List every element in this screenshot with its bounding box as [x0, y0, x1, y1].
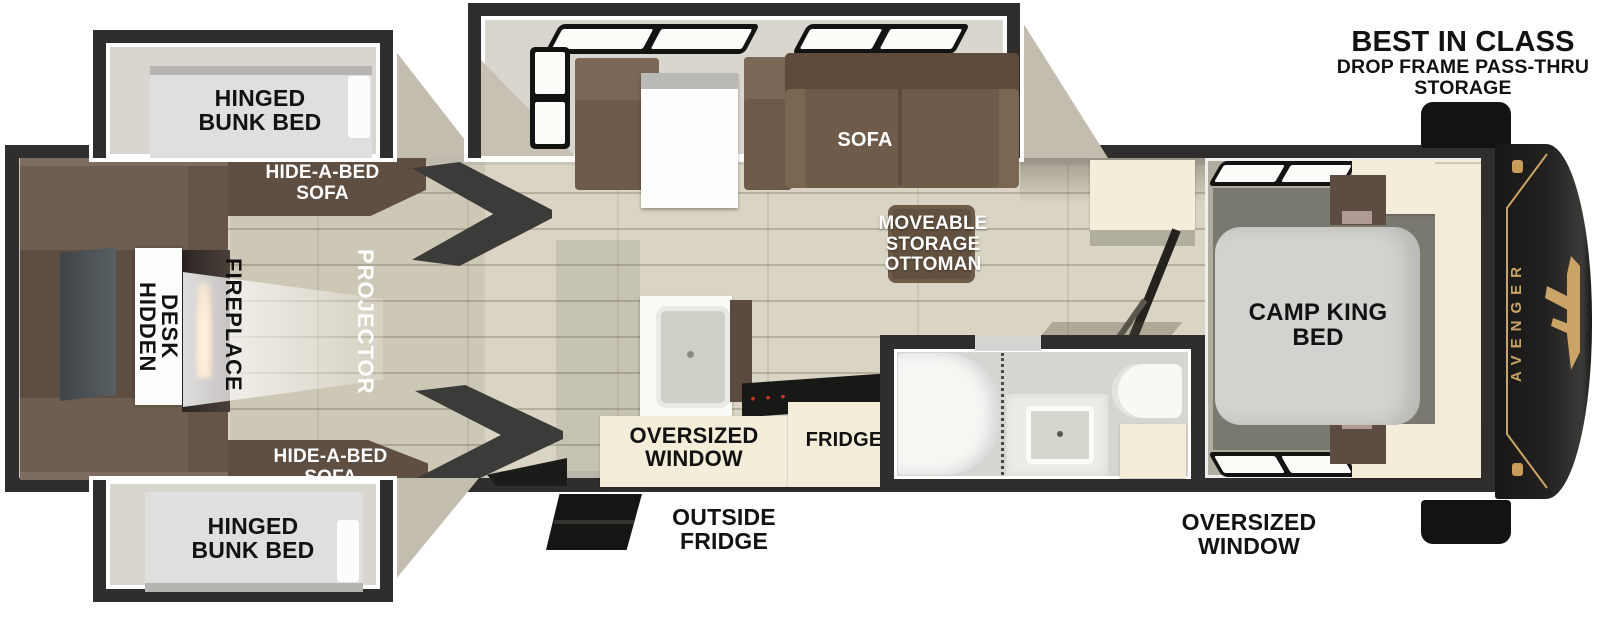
sink-drain: [687, 351, 694, 358]
bunk-top-sidewall: [387, 40, 479, 158]
nightstand-top: [1330, 175, 1386, 225]
shower-curtain-rod: [1001, 353, 1004, 475]
passthru-storage-door-bottom: [1421, 500, 1511, 544]
toilet: [1112, 364, 1182, 418]
window-pane: [535, 52, 565, 94]
outside-fridge-label: OUTSIDE FRIDGE: [645, 505, 803, 553]
brand-label: AVENGER: [1508, 161, 1526, 481]
shower: [898, 353, 1000, 475]
tv-screen: [60, 247, 116, 401]
fireplace-label: FIREPLACE: [222, 250, 252, 400]
hide-a-bed-top-label: HIDE-A-BED SOFA: [240, 163, 405, 204]
oversized-window-bedroom-label: OVERSIZED WINDOW: [1168, 510, 1330, 558]
cooktop-knobs: [748, 394, 788, 402]
window-pane: [651, 29, 753, 49]
rear-cabinet-top: [20, 158, 228, 250]
best-in-class-callout: BEST IN CLASS DROP FRAME PASS-THRU STORA…: [1330, 27, 1596, 98]
nightstand-drawer: [1342, 211, 1372, 224]
rv-floorplan: HIDDEN DESK FIREPLACE PROJECTOR HIDE-A-B…: [0, 0, 1600, 627]
dinette-table: [641, 73, 738, 208]
best-in-class-line1: BEST IN CLASS: [1330, 27, 1596, 57]
window-pane: [1214, 456, 1285, 473]
window-pane: [552, 29, 654, 49]
bedroom-wardrobe: [1435, 162, 1481, 478]
projector-label: PROJECTOR: [354, 242, 388, 402]
bunk-bottom-sidewall: [387, 478, 479, 590]
bath-sink: [1026, 406, 1094, 464]
ottoman-label: MOVEABLE STORAGE OTTOMAN: [853, 214, 1013, 276]
entry-step-edge: [554, 520, 634, 524]
entry-steps: [546, 494, 642, 550]
awning-window-right: [792, 24, 970, 54]
sofa-label: SOFA: [795, 130, 935, 152]
avenger-eagle-logo-icon: [1543, 256, 1587, 376]
kitchen-sink: [656, 306, 730, 408]
kitchen-island: [1090, 160, 1195, 230]
window-pane: [800, 29, 883, 49]
window-pane: [535, 102, 565, 144]
sofa: [785, 53, 1019, 188]
window-pane: [1214, 165, 1285, 182]
living-slide-sidewall: [1020, 18, 1108, 158]
bunk-bottom-label: HINGED BUNK BED: [153, 514, 353, 562]
camp-king-label: CAMP KING BED: [1218, 300, 1418, 350]
oversized-window-kitchen-label: OVERSIZED WINDOW: [600, 424, 788, 470]
awning-window-left: [544, 24, 760, 54]
best-in-class-line2: DROP FRAME PASS-THRU: [1330, 57, 1596, 77]
hidden-desk-label: HIDDEN DESK: [136, 252, 182, 402]
bunk-top-label: HINGED BUNK BED: [160, 86, 360, 134]
side-window: [530, 47, 570, 149]
bathroom-door-gap: [975, 335, 1041, 351]
passthru-storage-door-top: [1421, 102, 1511, 148]
bath-sink-drain: [1057, 431, 1063, 437]
bath-cabinet: [1120, 424, 1186, 478]
best-in-class-line3: STORAGE: [1330, 78, 1596, 98]
window-pane: [880, 29, 963, 49]
